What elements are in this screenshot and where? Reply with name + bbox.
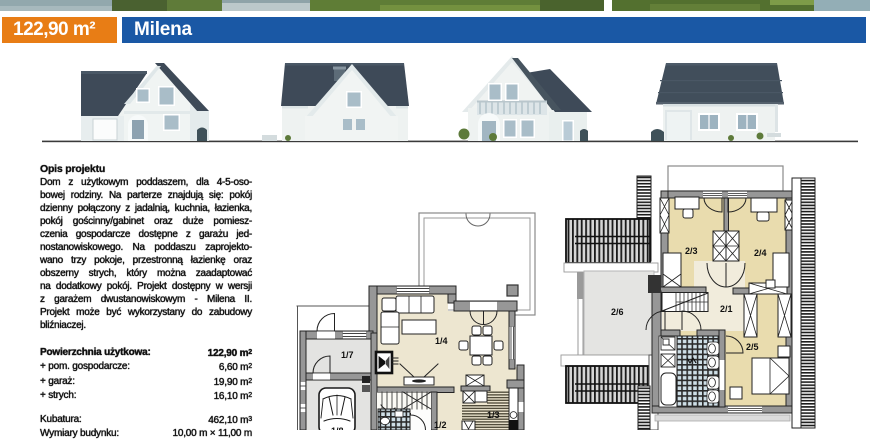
svg-text:2/4: 2/4 xyxy=(754,248,767,258)
svg-text:1/8: 1/8 xyxy=(331,426,344,430)
svg-text:1/4: 1/4 xyxy=(435,336,448,346)
svg-text:2/3: 2/3 xyxy=(685,246,698,256)
svg-text:1/3: 1/3 xyxy=(487,410,500,420)
svg-text:2/6: 2/6 xyxy=(611,307,624,317)
svg-text:1/7: 1/7 xyxy=(341,350,354,360)
svg-text:2/5: 2/5 xyxy=(746,342,759,352)
svg-text:1/2: 1/2 xyxy=(434,420,447,430)
svg-text:2/1: 2/1 xyxy=(720,304,733,314)
